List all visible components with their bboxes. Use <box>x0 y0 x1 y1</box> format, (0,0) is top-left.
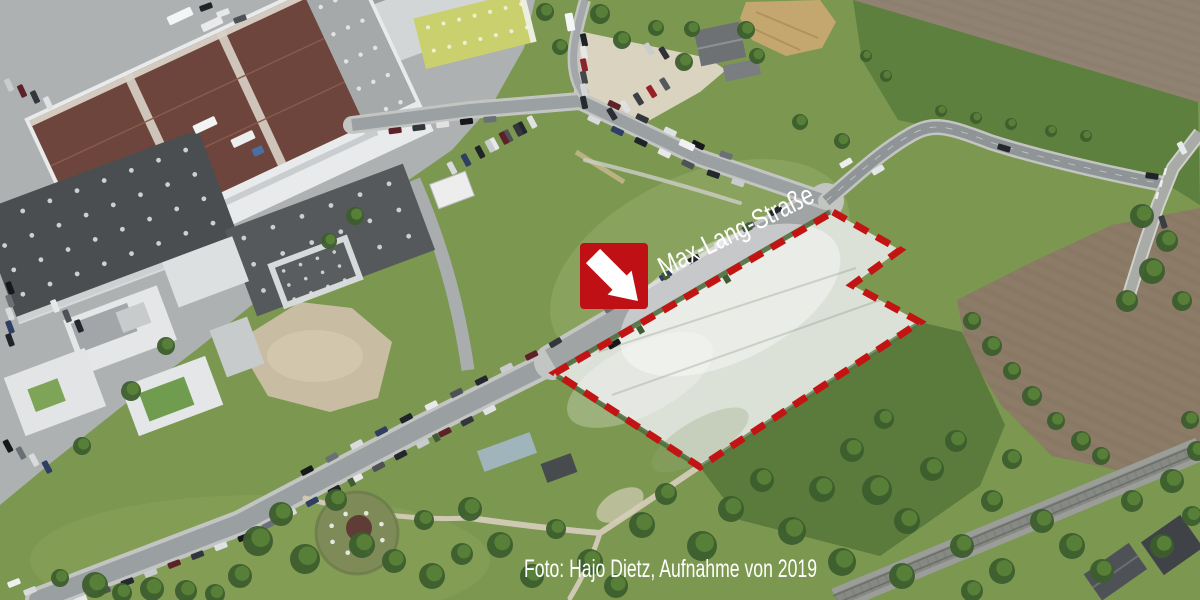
aerial-photograph: Max-Lang-Straße Foto: Hajo Dietz, Aufnah… <box>0 0 1200 600</box>
site-marker <box>580 243 648 309</box>
photo-credit: Foto: Hajo Dietz, Aufnahme von 2019 <box>524 555 817 583</box>
aerial-photo-stage: Max-Lang-Straße Foto: Hajo Dietz, Aufnah… <box>0 0 1200 600</box>
